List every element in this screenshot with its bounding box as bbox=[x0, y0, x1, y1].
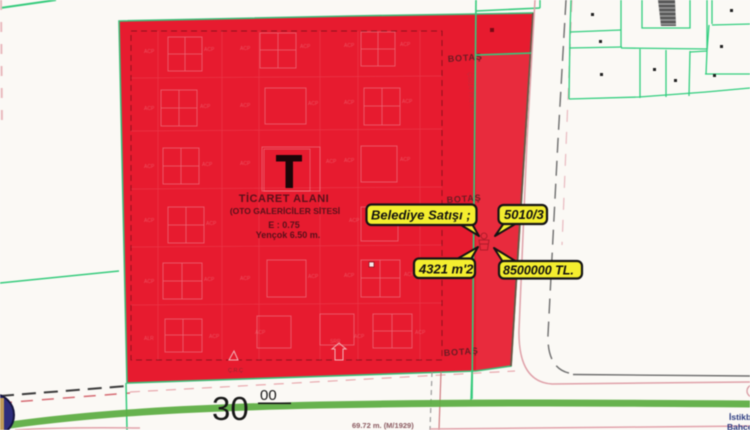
svg-text:ACP: ACP bbox=[344, 273, 355, 279]
svg-text:ACP: ACP bbox=[240, 161, 251, 167]
svg-text:00: 00 bbox=[260, 387, 277, 404]
svg-text:(OTO GALERİCİLER SİTESİ: (OTO GALERİCİLER SİTESİ bbox=[230, 206, 340, 216]
svg-text:ACP: ACP bbox=[300, 44, 311, 50]
svg-text:ACP: ACP bbox=[206, 221, 217, 227]
svg-text:ACP: ACP bbox=[240, 46, 251, 52]
svg-text:ACP: ACP bbox=[209, 334, 220, 340]
svg-text:ACP: ACP bbox=[240, 276, 251, 282]
svg-text:E : 0.75: E : 0.75 bbox=[268, 220, 300, 230]
svg-text:ACP: ACP bbox=[326, 159, 337, 165]
svg-text:ACP: ACP bbox=[240, 103, 251, 109]
svg-text:Ç.R.Ç: Ç.R.Ç bbox=[228, 368, 243, 374]
svg-text:ACP: ACP bbox=[344, 100, 355, 106]
svg-text:ACP: ACP bbox=[144, 49, 155, 55]
svg-text:ACP: ACP bbox=[144, 164, 155, 170]
svg-text:ACP: ACP bbox=[200, 104, 211, 110]
svg-text:4321 m'2: 4321 m'2 bbox=[418, 262, 474, 277]
svg-text:ACP: ACP bbox=[144, 106, 155, 112]
svg-text:ACP: ACP bbox=[402, 99, 413, 105]
svg-text:Belediye Satışı ;: Belediye Satışı ; bbox=[371, 208, 471, 223]
svg-text:Yençok 6.50 m.: Yençok 6.50 m. bbox=[256, 230, 321, 240]
svg-text:ACP: ACP bbox=[349, 218, 360, 224]
svg-text:5010/3: 5010/3 bbox=[504, 207, 545, 222]
svg-text:ACP: ACP bbox=[400, 157, 411, 163]
svg-text:ACP: ACP bbox=[354, 334, 365, 340]
svg-text:ACP: ACP bbox=[144, 218, 155, 224]
svg-text:Bahçe: Bahçe bbox=[727, 422, 750, 430]
svg-text:ACP: ACP bbox=[400, 42, 411, 48]
svg-text:69.72 m. (M/1929): 69.72 m. (M/1929) bbox=[352, 421, 414, 430]
svg-text:ACP: ACP bbox=[344, 43, 355, 49]
svg-text:ACP: ACP bbox=[308, 101, 319, 107]
svg-text:ACP: ACP bbox=[415, 330, 426, 336]
svg-text:8500000 TL.: 8500000 TL. bbox=[503, 264, 574, 278]
svg-text:ACP: ACP bbox=[204, 277, 215, 283]
svg-text:ACP: ACP bbox=[255, 330, 266, 336]
svg-text:ACP: ACP bbox=[344, 158, 355, 164]
svg-text:TİCARET ALANI: TİCARET ALANI bbox=[239, 192, 329, 205]
svg-text:ALR: ALR bbox=[144, 336, 154, 342]
svg-text:İstikb: İstikb bbox=[729, 412, 750, 422]
svg-text:ACP: ACP bbox=[308, 274, 319, 280]
svg-text:ACP: ACP bbox=[204, 47, 215, 53]
svg-text:ACP: ACP bbox=[144, 279, 155, 285]
svg-text:30: 30 bbox=[212, 390, 249, 427]
svg-text:ACP: ACP bbox=[202, 162, 213, 168]
svg-text:SRR: SRR bbox=[330, 339, 341, 345]
